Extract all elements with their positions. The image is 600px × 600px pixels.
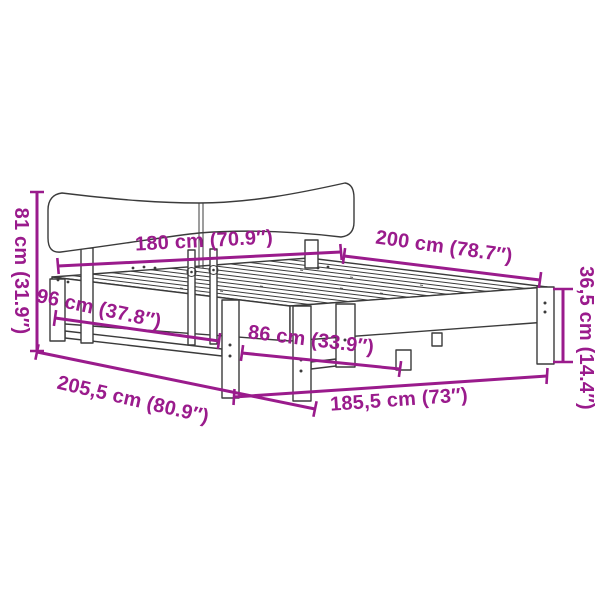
headboard-center-post-right bbox=[210, 249, 217, 344]
center-rail-bracket bbox=[432, 333, 442, 346]
label-headboard-height: 81 cm (31.9″) bbox=[10, 208, 32, 335]
foot-front-corner-leg bbox=[293, 306, 311, 401]
headboard-center-post-left bbox=[188, 250, 195, 345]
center-support-leg bbox=[396, 350, 411, 370]
bed-frame-dimension-drawing: 81 cm (31.9″) 180 cm (70.9″) 200 cm (78.… bbox=[0, 0, 600, 600]
label-frame-length: 205,5 cm (80.9″) bbox=[55, 372, 211, 428]
product-dimension-diagram: 81 cm (31.9″) 180 cm (70.9″) 200 cm (78.… bbox=[0, 0, 600, 600]
dimension-rail-height bbox=[553, 289, 573, 362]
front-middle-leg bbox=[222, 300, 239, 398]
label-rail-height: 36,5 cm (14.4″) bbox=[575, 266, 597, 410]
foot-back-corner-leg bbox=[537, 287, 554, 364]
